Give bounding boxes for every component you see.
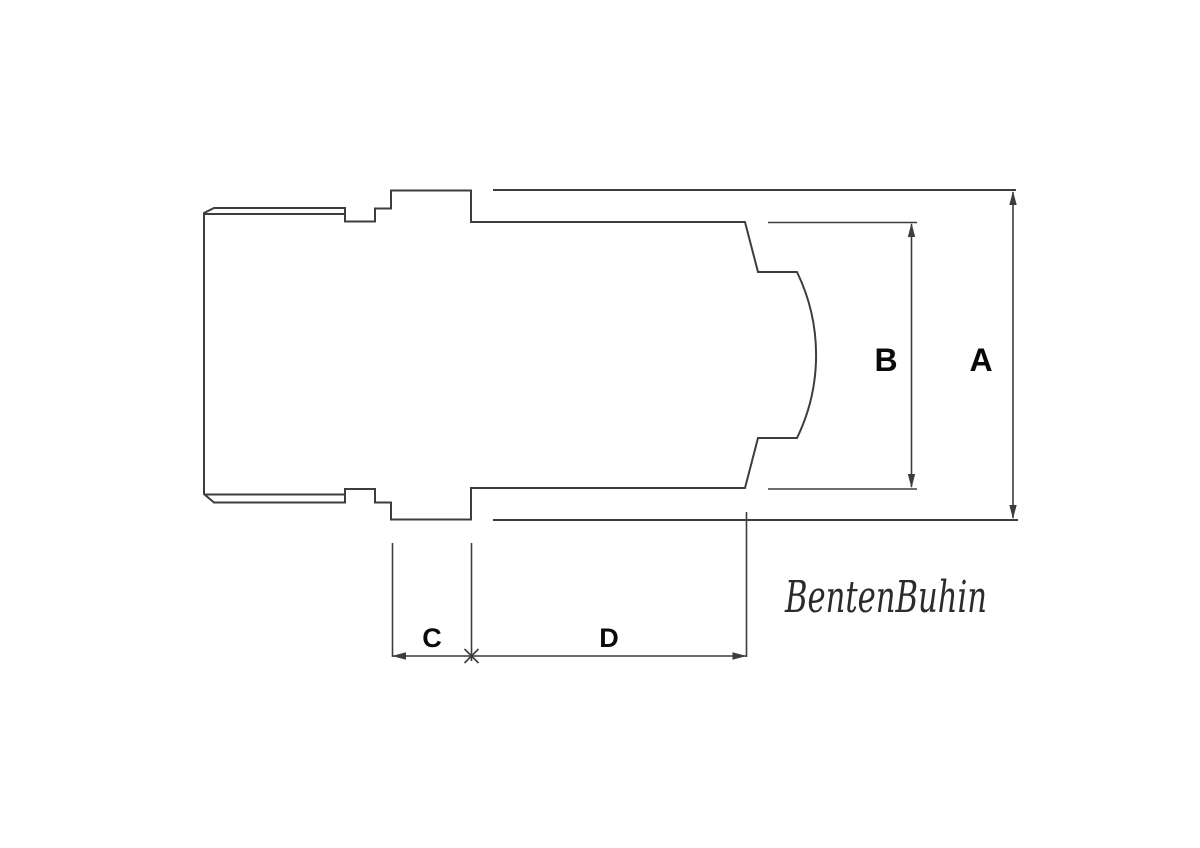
brand-signature: BentenBuhin [784, 572, 987, 623]
technical-drawing: B A C D BentenBuhin [0, 0, 1200, 848]
dim-c-arrow-left [392, 652, 406, 659]
dim-b-arrow-down [908, 474, 915, 488]
dimension-b-label: B [874, 342, 897, 378]
dim-b-arrow-up [908, 223, 915, 237]
dim-a-arrow-up [1009, 191, 1016, 205]
dim-a-arrow-down [1009, 505, 1016, 519]
drawing-canvas: B A C D BentenBuhin [0, 0, 1200, 848]
dim-d-arrow-right [733, 652, 747, 659]
dimension-d-label: D [599, 623, 619, 653]
dimension-a-label: A [969, 342, 992, 378]
part-section-profile [204, 191, 816, 520]
dimension-c-label: C [422, 623, 442, 653]
